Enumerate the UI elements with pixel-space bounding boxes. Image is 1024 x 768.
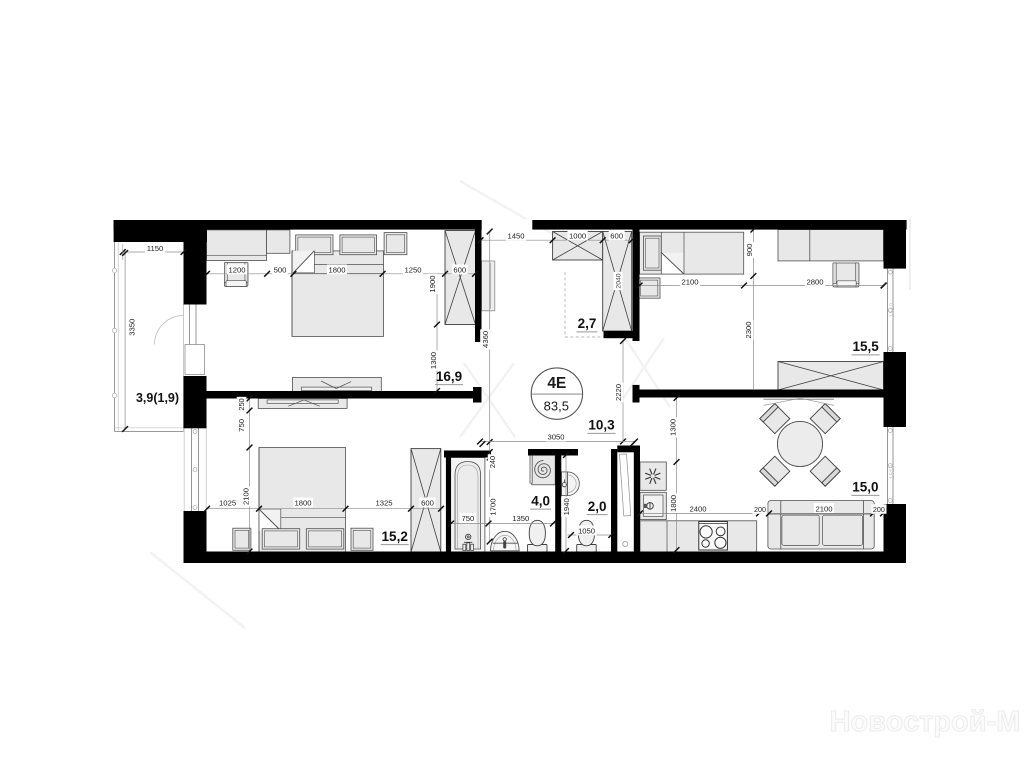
svg-text:240: 240	[488, 456, 497, 468]
svg-text:15,2: 15,2	[382, 529, 408, 544]
svg-text:4,0: 4,0	[531, 493, 550, 508]
svg-text:1025: 1025	[219, 499, 236, 508]
svg-text:83,5: 83,5	[544, 398, 569, 413]
svg-text:16,9: 16,9	[436, 369, 462, 384]
svg-text:1050: 1050	[578, 527, 595, 536]
svg-text:1300: 1300	[429, 352, 438, 369]
svg-text:1800: 1800	[328, 266, 345, 275]
svg-text:2300: 2300	[744, 321, 753, 338]
svg-text:2,0: 2,0	[588, 499, 607, 514]
svg-text:1450: 1450	[507, 232, 524, 241]
svg-text:750: 750	[237, 419, 246, 432]
svg-text:1200: 1200	[228, 266, 245, 275]
svg-text:2800: 2800	[806, 278, 823, 287]
svg-text:10,3: 10,3	[588, 418, 615, 433]
svg-text:1800: 1800	[294, 499, 311, 508]
svg-text:2100: 2100	[241, 488, 250, 505]
svg-text:250: 250	[237, 398, 246, 410]
svg-text:600: 600	[421, 499, 434, 508]
svg-text:1700: 1700	[488, 498, 497, 515]
svg-text:600: 600	[610, 232, 623, 241]
svg-text:2400: 2400	[689, 504, 706, 513]
svg-text:1350: 1350	[512, 514, 529, 523]
svg-text:3050: 3050	[547, 433, 564, 442]
svg-text:1000: 1000	[569, 232, 586, 241]
svg-text:1510: 1510	[889, 464, 896, 479]
svg-text:Новострой-М: Новострой-М	[830, 706, 1021, 738]
svg-text:1510: 1510	[889, 302, 896, 317]
svg-text:15,0: 15,0	[852, 480, 878, 495]
svg-text:2040: 2040	[615, 273, 622, 288]
svg-text:1800: 1800	[669, 495, 678, 512]
svg-text:15,5: 15,5	[852, 339, 879, 354]
svg-text:2100: 2100	[815, 504, 832, 513]
svg-text:2,7: 2,7	[578, 316, 597, 331]
svg-text:1250: 1250	[404, 266, 421, 275]
svg-text:4E: 4E	[547, 375, 566, 392]
svg-text:900: 900	[745, 244, 754, 257]
svg-text:200: 200	[754, 505, 766, 514]
svg-text:600: 600	[453, 266, 466, 275]
svg-text:1900: 1900	[428, 275, 437, 292]
svg-text:500: 500	[274, 266, 287, 275]
svg-text:3350: 3350	[127, 319, 136, 336]
svg-text:2100: 2100	[681, 278, 698, 287]
svg-text:1940: 1940	[562, 498, 571, 515]
svg-text:4360: 4360	[481, 331, 490, 348]
svg-text:1150: 1150	[147, 244, 164, 253]
svg-text:1300: 1300	[668, 419, 677, 436]
svg-text:3,9(1,9): 3,9(1,9)	[136, 391, 179, 405]
svg-text:1325: 1325	[375, 499, 392, 508]
svg-text:2220: 2220	[614, 384, 623, 401]
svg-text:750: 750	[461, 514, 474, 523]
svg-text:200: 200	[873, 505, 885, 514]
